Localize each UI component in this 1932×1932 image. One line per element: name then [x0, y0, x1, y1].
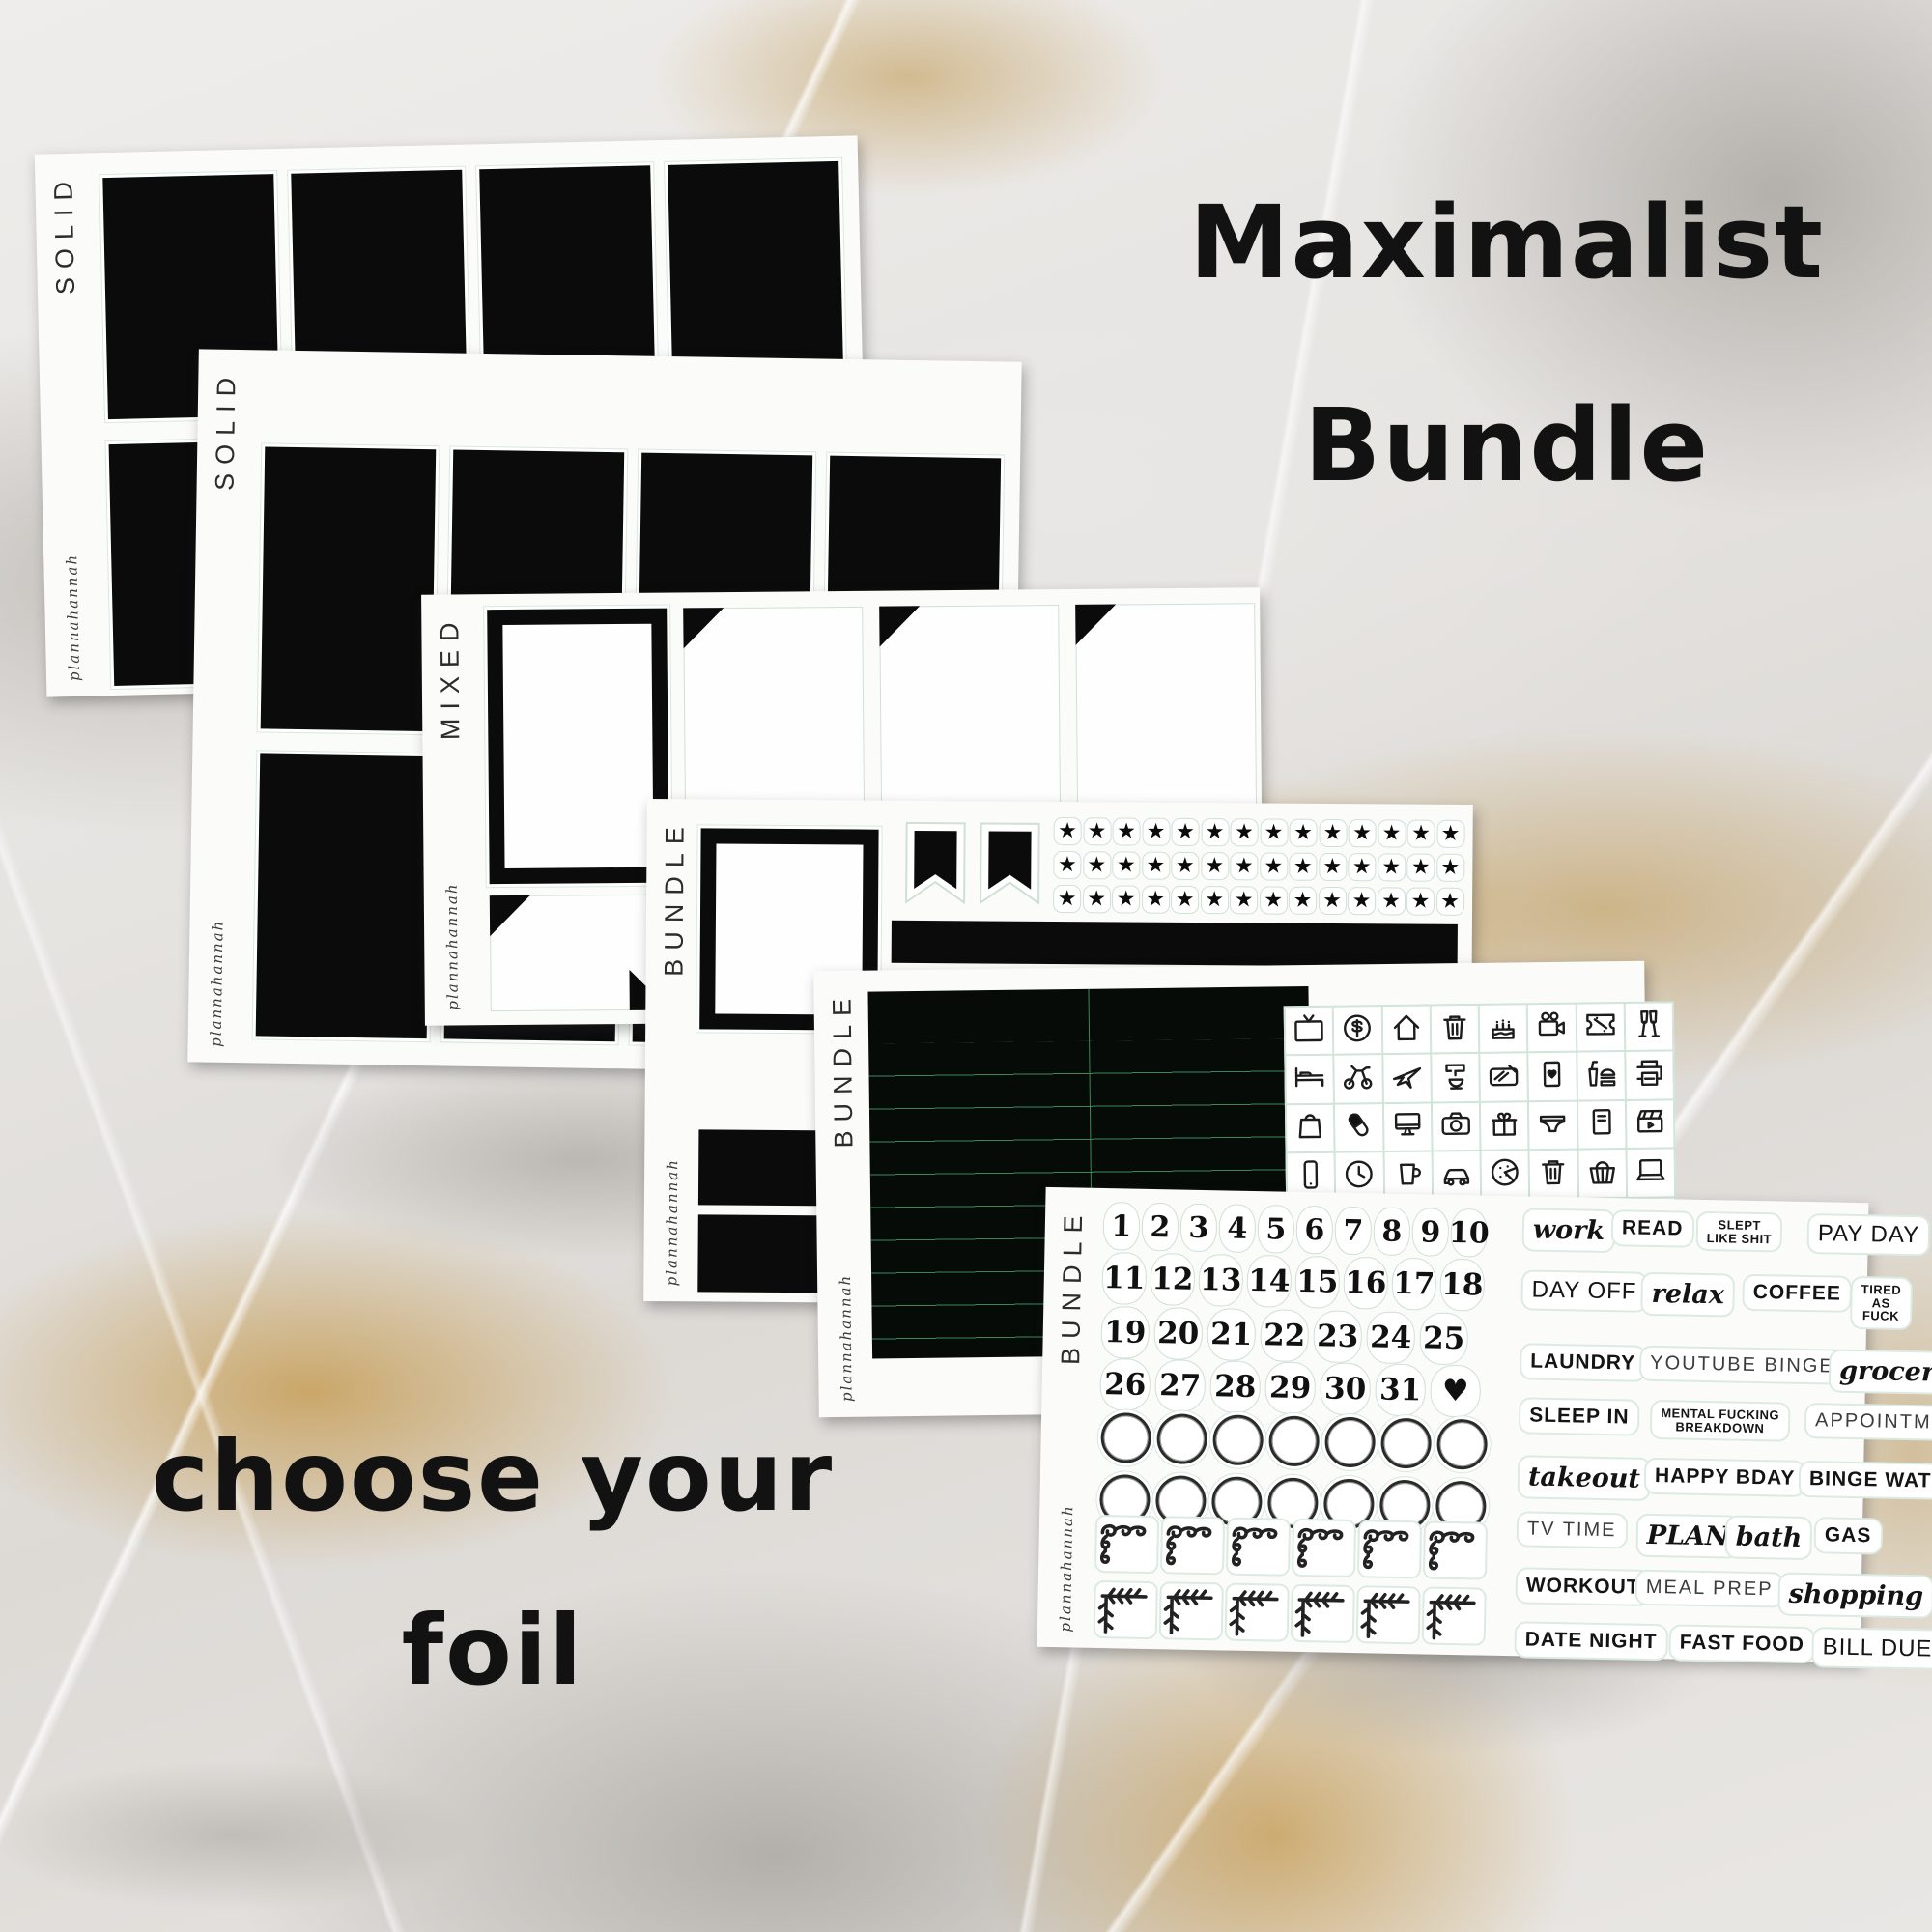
gift-icon: [1487, 1106, 1521, 1146]
icon-cell: [1430, 1005, 1479, 1054]
solid-box-sticker: [261, 446, 437, 731]
header-bar-sticker: [892, 921, 1458, 967]
swirl-path: [1365, 1531, 1407, 1568]
clapperboard-icon: [1633, 1104, 1667, 1144]
date-number-sticker: 30: [1320, 1362, 1371, 1415]
word-sticker: READ: [1611, 1209, 1694, 1248]
star-sticker: ★: [1378, 887, 1406, 915]
date-number-sticker: 28: [1209, 1360, 1261, 1413]
date-number-sticker: 25: [1419, 1312, 1468, 1365]
star-sticker: ★: [1083, 885, 1111, 913]
corner-triangle: [683, 608, 724, 648]
brand-script: plannahannah: [443, 882, 462, 1009]
word-sticker: COFFEE: [1742, 1274, 1852, 1313]
sticker-sheet-bundle-3: BUNDLE plannahannah 12345678910111213141…: [1037, 1187, 1869, 1662]
icon-cell: [1528, 1052, 1577, 1101]
date-number-sticker: 1: [1102, 1202, 1140, 1251]
word-sticker: DATE NIGHT: [1514, 1621, 1667, 1661]
clock-icon: [1342, 1156, 1377, 1196]
money-icon: [1340, 1010, 1375, 1050]
brand-script: plannahannah: [1057, 1504, 1077, 1632]
trash-can-icon: [1437, 1009, 1472, 1049]
swirl-path: [1102, 1526, 1145, 1563]
circle-sticker: [1100, 1412, 1151, 1463]
star-sticker: ★: [1348, 819, 1376, 847]
mug-icon: [1390, 1155, 1425, 1195]
leaf-corner-sticker: [1225, 1583, 1290, 1642]
solid-box-sticker: [256, 753, 432, 1038]
star-sticker: ★: [1319, 887, 1347, 915]
fast-food-icon: [1583, 1056, 1618, 1095]
date-number-sticker: 2: [1141, 1203, 1179, 1252]
laptop-icon: [1633, 1152, 1667, 1192]
swirl-path: [1168, 1527, 1210, 1564]
star-sticker: ★: [1348, 853, 1376, 881]
half-corner-box-sticker: [490, 895, 670, 1012]
star-sticker: ★: [1083, 851, 1111, 879]
airplane-icon: [1389, 1059, 1424, 1098]
star-sticker: ★: [1054, 817, 1082, 845]
icon-cell: [1577, 1149, 1627, 1198]
circle-sticker: [1156, 1413, 1207, 1464]
star-sticker: ★: [1201, 852, 1229, 880]
star-sticker: ★: [1230, 852, 1258, 880]
pizza-icon: [1488, 1154, 1522, 1194]
star-sticker: ★: [1260, 818, 1288, 846]
swirl-path: [1299, 1529, 1342, 1566]
notebook-icon: [1584, 1105, 1619, 1145]
star-sticker: ★: [1348, 887, 1376, 915]
camera-icon: [1438, 1106, 1473, 1146]
date-number-sticker: 11: [1101, 1252, 1147, 1305]
frame-box-inner: [502, 624, 653, 868]
caption-line-1: choose your: [126, 1420, 860, 1533]
swirl-corner-sticker: [1357, 1520, 1422, 1578]
word-sticker: DAY OFF: [1520, 1269, 1648, 1313]
word-sticker: GAS: [1814, 1517, 1883, 1554]
date-number-sticker: 24: [1366, 1311, 1415, 1364]
birthday-cake-icon: [1486, 1009, 1520, 1048]
date-number-sticker: 5: [1257, 1205, 1294, 1254]
icon-cell: [1624, 1002, 1673, 1051]
star-sticker: ★: [1378, 853, 1406, 881]
date-number-sticker: 26: [1099, 1358, 1151, 1411]
word-sticker: APPOINTMENT: [1804, 1403, 1932, 1442]
word-sticker: takeout: [1518, 1455, 1652, 1501]
date-number-sticker: 13: [1198, 1254, 1243, 1307]
icon-cell: [1334, 1103, 1383, 1152]
star-sticker: ★: [1436, 820, 1464, 848]
brand-script: plannahannah: [837, 1274, 856, 1402]
star-sticker: ★: [1436, 854, 1464, 882]
star-sticker: ★: [1230, 886, 1258, 914]
circle-sticker: [1268, 1415, 1320, 1466]
word-sticker: work: [1521, 1207, 1615, 1253]
star-sticker: ★: [1112, 817, 1140, 845]
brand-script: plannahannah: [208, 919, 227, 1046]
trash-can-icon: [1536, 1154, 1571, 1194]
icon-cell: [1529, 1150, 1578, 1199]
underwear-icon: [1535, 1105, 1570, 1145]
car-icon: [1438, 1155, 1473, 1195]
title-line-1: Maximalist: [1150, 184, 1864, 301]
icon-cell: [1576, 1003, 1625, 1052]
date-number-sticker: 16: [1343, 1257, 1388, 1310]
star-sticker: ★: [1406, 854, 1435, 882]
brand-script: plannahannah: [663, 1158, 681, 1286]
star-sticker: ★: [1378, 819, 1406, 847]
circle-sticker: [1212, 1414, 1264, 1465]
frame-box-sticker: [487, 609, 668, 885]
sheet-label: BUNDLE: [1056, 1207, 1089, 1365]
caption-line-2: foil: [126, 1594, 860, 1707]
cooking-icon: [1486, 1057, 1520, 1096]
date-number-sticker: 31: [1375, 1363, 1426, 1416]
star-sticker: ★: [1319, 853, 1347, 881]
word-sticker: SLEPT LIKE SHIT: [1696, 1211, 1783, 1253]
stand-mixer-icon: [1437, 1058, 1472, 1097]
circle-sticker: [1436, 1419, 1488, 1470]
word-sticker: BILL DUE: [1811, 1627, 1932, 1670]
date-number-sticker: 22: [1260, 1309, 1309, 1362]
icon-cell: [1431, 1053, 1480, 1102]
ticket-icon: [1582, 1008, 1617, 1047]
star-sticker: ★: [1319, 819, 1347, 847]
date-number-sticker: 15: [1294, 1256, 1340, 1309]
playing-card-icon: [1535, 1057, 1570, 1096]
icon-cell: [1286, 1103, 1335, 1152]
icon-cell: [1285, 1055, 1334, 1104]
corner-triangle: [1075, 605, 1116, 645]
icon-cell: [1333, 1006, 1382, 1055]
sheet-label: MIXED: [435, 613, 466, 740]
star-sticker: ★: [1436, 888, 1464, 916]
date-number-sticker: 4: [1218, 1204, 1256, 1253]
leaf-corner-sticker: [1291, 1584, 1355, 1643]
star-sticker: ★: [1260, 886, 1288, 914]
video-camera-icon: [1534, 1008, 1569, 1047]
icon-cell: [1625, 1051, 1674, 1100]
icon-cell: [1527, 1004, 1577, 1053]
icon-cell: [1577, 1051, 1626, 1100]
printer-icon: [1632, 1056, 1666, 1095]
star-sticker: ★: [1406, 820, 1435, 848]
word-sticker: shopping: [1777, 1573, 1932, 1619]
swirl-path: [1234, 1528, 1276, 1565]
shopping-bag-icon: [1293, 1108, 1327, 1148]
word-sticker: TV TIME: [1517, 1511, 1628, 1548]
date-number-sticker: 27: [1154, 1359, 1206, 1412]
bed-icon: [1292, 1060, 1326, 1099]
word-sticker: LAUNDRY: [1520, 1343, 1647, 1382]
icon-cell: [1479, 1053, 1528, 1102]
icon-cell: [1626, 1099, 1675, 1149]
swirl-corner-sticker: [1292, 1519, 1356, 1577]
title-line-2: Bundle: [1150, 386, 1864, 504]
word-sticker: relax: [1640, 1272, 1735, 1318]
date-number-sticker: 7: [1334, 1207, 1372, 1256]
star-sticker: ★: [1142, 852, 1170, 880]
swirl-corner-sticker: [1094, 1515, 1159, 1574]
star-sticker: ★: [1230, 818, 1258, 846]
word-sticker: BINGE WATCH: [1799, 1461, 1932, 1500]
icon-cell: [1381, 1005, 1431, 1054]
date-number-sticker: 8: [1373, 1207, 1410, 1256]
pennant-flag-sticker: [903, 820, 968, 905]
swirl-corner-sticker: [1226, 1518, 1291, 1577]
word-sticker: groceries: [1829, 1349, 1932, 1395]
date-number-sticker: 29: [1264, 1361, 1316, 1414]
star-sticker: ★: [1406, 888, 1435, 916]
pennant-flag-sticker: [978, 820, 1042, 905]
star-sticker: ★: [1171, 818, 1199, 846]
swirl-corner-sticker: [1160, 1516, 1225, 1575]
icon-cell: [1626, 1149, 1675, 1198]
tv-icon: [1292, 1010, 1326, 1050]
date-number-sticker: 10: [1450, 1208, 1488, 1258]
star-sticker: ★: [1112, 851, 1140, 879]
date-number-sticker: 17: [1391, 1258, 1436, 1311]
date-number-sticker: 14: [1246, 1255, 1292, 1308]
icon-cell: [1382, 1054, 1432, 1103]
word-sticker: PAY DAY: [1806, 1213, 1930, 1256]
star-sticker: ★: [1289, 887, 1317, 915]
icon-cell: [1382, 1102, 1432, 1151]
leaf-corner-sticker: [1094, 1580, 1158, 1639]
date-number-sticker: 19: [1100, 1306, 1150, 1359]
star-sticker: ★: [1053, 851, 1081, 879]
sheet-label-strip: MIXED plannahannah: [421, 594, 479, 1025]
exercise-bike-icon: [1341, 1059, 1376, 1098]
leaf-corner-sticker: [1422, 1586, 1487, 1645]
star-sticker: ★: [1260, 852, 1288, 880]
word-sticker: WORKOUT: [1515, 1567, 1651, 1606]
champagne-icon: [1632, 1007, 1666, 1046]
house-icon: [1388, 1009, 1423, 1049]
star-sticker: ★: [1112, 885, 1140, 913]
date-number-sticker: 6: [1295, 1206, 1333, 1255]
corner-triangle: [879, 606, 920, 646]
icon-cell: [1479, 1004, 1528, 1053]
date-number-sticker: 23: [1313, 1310, 1362, 1363]
icon-cell: [1432, 1151, 1481, 1200]
word-sticker: MENTAL FUCKING BREAKDOWN: [1650, 1400, 1791, 1442]
star-sticker: ★: [1142, 818, 1170, 846]
leaf-corner-sticker: [1159, 1581, 1224, 1640]
word-sticker: HAPPY BDAY: [1644, 1458, 1806, 1497]
date-number-sticker: 20: [1153, 1307, 1203, 1360]
icon-cell: [1577, 1100, 1626, 1150]
swirl-path: [1431, 1532, 1473, 1569]
laundry-basket-icon: [1584, 1153, 1619, 1193]
date-number-sticker: 9: [1411, 1207, 1449, 1257]
brand-script: plannahannah: [63, 554, 83, 682]
icon-cell: [1481, 1150, 1530, 1199]
sheet-label-strip: BUNDLE plannahannah: [813, 971, 873, 1418]
date-number-sticker: 3: [1179, 1204, 1217, 1253]
word-sticker: SLEEP IN: [1519, 1397, 1640, 1435]
sheet-label: BUNDLE: [827, 990, 859, 1149]
icon-cell: [1334, 1054, 1383, 1103]
corner-triangle: [490, 895, 530, 936]
icon-cell: [1285, 1007, 1334, 1056]
word-sticker: MEAL PREP: [1634, 1570, 1783, 1608]
sheet-label: BUNDLE: [660, 818, 691, 977]
word-sticker: bath: [1724, 1515, 1812, 1560]
sheet-label-strip: BUNDLE plannahannah: [643, 799, 701, 1301]
word-sticker: TIRED AS FUCK: [1850, 1276, 1913, 1330]
star-sticker: ★: [1142, 886, 1170, 914]
star-sticker: ★: [1053, 885, 1081, 913]
star-sticker: ★: [1201, 818, 1229, 846]
sheet-label: SOLID: [211, 369, 242, 492]
star-sticker: ★: [1083, 817, 1111, 845]
date-number-sticker: 12: [1150, 1253, 1195, 1306]
word-sticker: YOUTUBE BINGE: [1639, 1346, 1845, 1385]
word-sticker: FAST FOOD: [1668, 1624, 1815, 1663]
icon-cell: [1480, 1101, 1529, 1151]
icon-cell: [1432, 1102, 1481, 1151]
date-number-sticker: 21: [1207, 1308, 1256, 1361]
heart-sticker: ♥: [1430, 1365, 1481, 1418]
circle-sticker: [1324, 1416, 1376, 1467]
star-sticker: ★: [1201, 886, 1229, 914]
desktop-computer-icon: [1390, 1107, 1425, 1147]
star-sticker: ★: [1171, 886, 1199, 914]
star-sticker: ★: [1289, 853, 1317, 881]
sheet-label-strip: BUNDLE plannahannah: [1037, 1187, 1100, 1648]
circle-sticker: [1380, 1418, 1432, 1469]
date-number-sticker: 18: [1439, 1259, 1485, 1312]
product-listing-image: SOLID plannahannah SOLID plannahannah MI…: [0, 0, 1932, 1932]
star-sticker: ★: [1289, 819, 1317, 847]
sheet-label: SOLID: [48, 173, 81, 296]
icon-cell: [1528, 1100, 1577, 1150]
swirl-corner-sticker: [1423, 1520, 1488, 1579]
star-sticker: ★: [1171, 852, 1199, 880]
pill-icon: [1341, 1108, 1376, 1148]
leaf-corner-sticker: [1356, 1585, 1421, 1644]
